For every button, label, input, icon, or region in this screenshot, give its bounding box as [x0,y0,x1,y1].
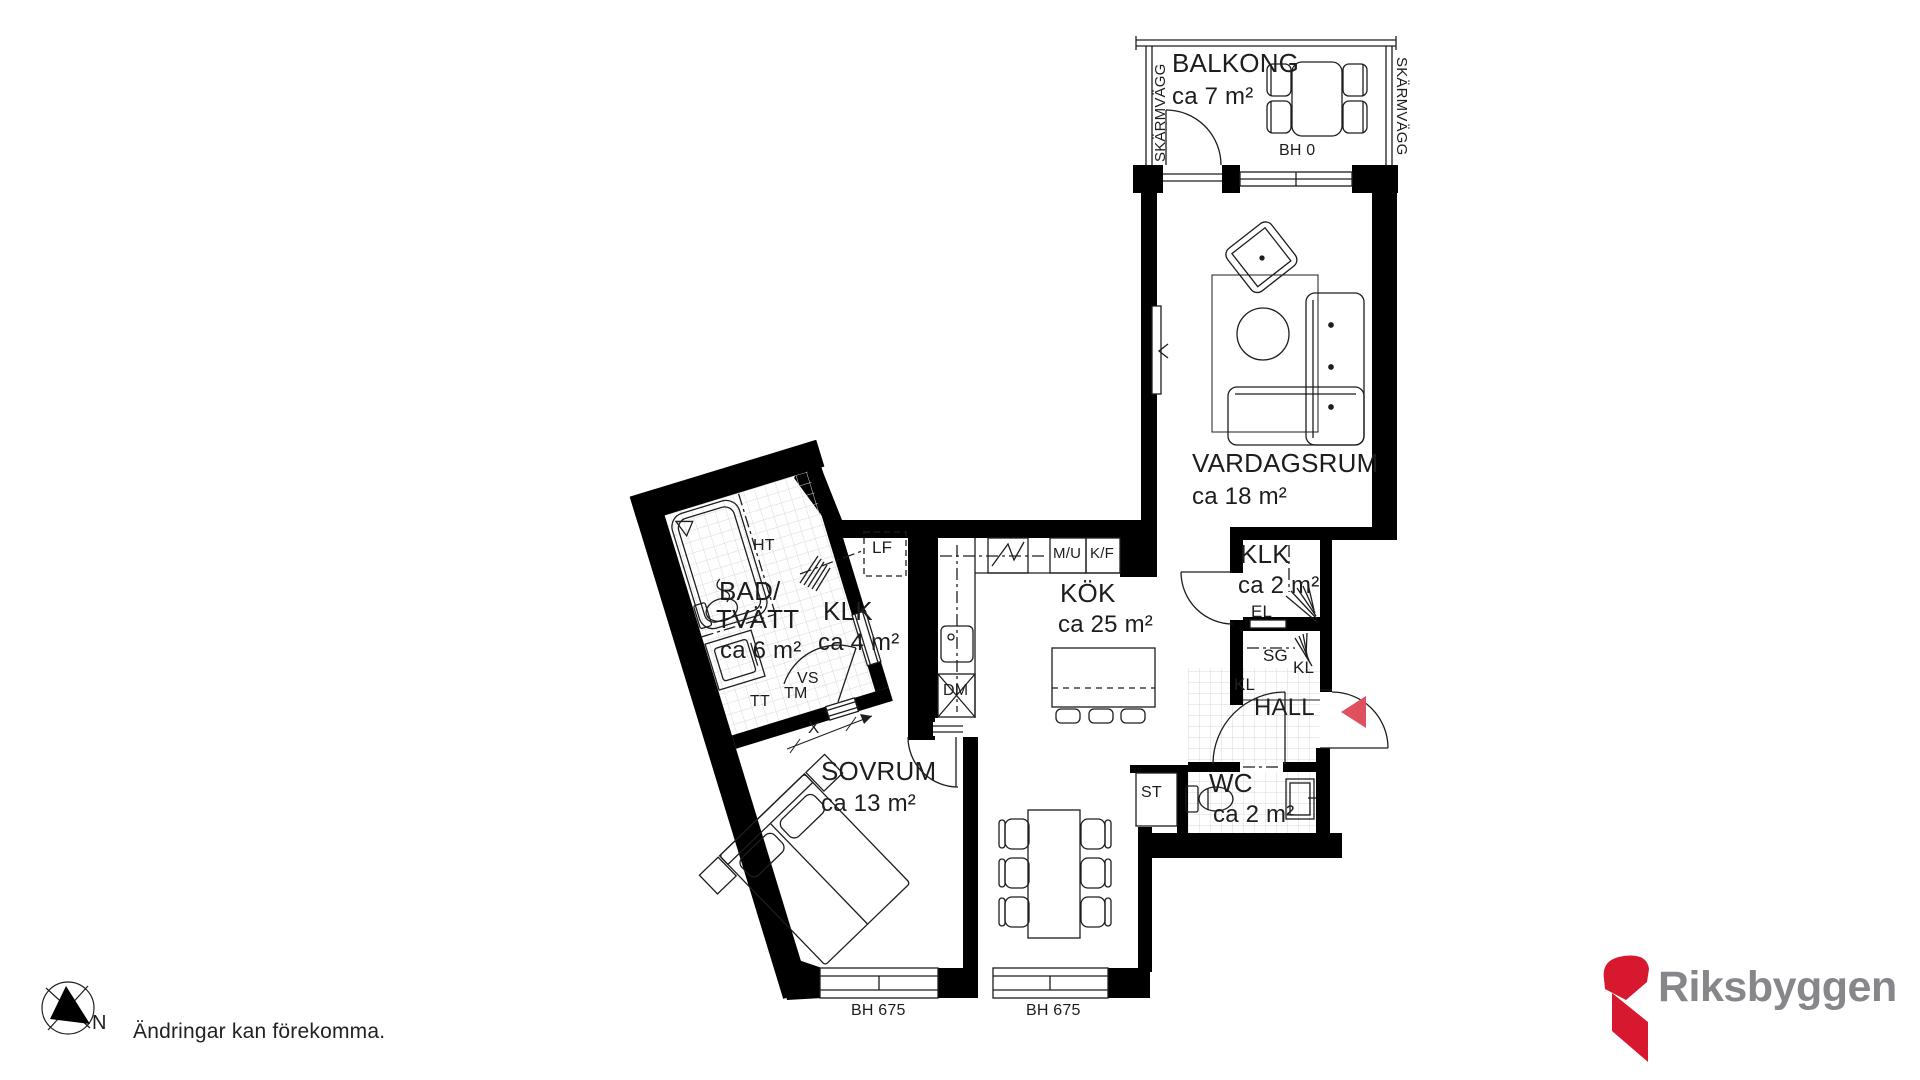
closet-small-name: KLK [1240,541,1290,567]
coffee-table-icon [1237,308,1289,360]
tm-label: TM [784,686,808,702]
micro-oven-label: M/U [1053,546,1081,561]
kitchen-window [993,968,1108,998]
screen-wall-label-right: SKÄRMVÄGG [1394,57,1409,156]
el-label: EL [1251,603,1272,620]
riksbyggen-logo-icon [1604,956,1649,1062]
dishwasher-label: DM [943,683,968,699]
closet-walkin-name: KLK [823,598,873,624]
wc-area: ca 2 m² [1213,803,1294,827]
bath-name-1: BAD/ [719,578,780,604]
living-room-window-west [1152,306,1168,394]
brand-name: Riksbyggen [1658,963,1897,1012]
bedroom-name: SOVRUM [821,758,936,784]
balcony-door [1166,110,1221,165]
north-label: N [92,1013,107,1033]
kitchen [794,442,1157,998]
floorplan-page: BALKONG ca 7 m² BH 0 SKÄRMVÄGG SKÄRMVÄGG… [0,0,1920,1080]
tt-label: TT [750,694,770,710]
kitchen-island-icon [1052,648,1155,723]
electric-cabinet [1250,620,1286,628]
hall-name: HALL [1254,696,1315,720]
entrance-door [1320,690,1388,748]
closet-walkin-area: ca 4 m² [818,631,899,655]
lf-label: LF [872,539,892,556]
bath-area: ca 6 m² [720,639,801,663]
sg-label: SG [1263,647,1288,664]
closet-small-area: ca 2 m² [1238,574,1319,598]
disclaimer-text: Ändringar kan förekomma. [133,1021,385,1042]
bedroom-window [820,968,938,998]
bath-name-2: TVÄTT [716,606,799,632]
armchair-icon [1223,219,1300,296]
balcony-area: ca 7 m² [1172,85,1253,109]
living-name: VARDAGSRUM [1192,450,1378,476]
kl-label-1: KL [1293,659,1314,676]
wc-name: WC [1209,770,1253,796]
window-sill-label-1: BH 675 [851,1003,906,1019]
dimension-x-label: X [808,719,820,736]
compass-icon [42,982,94,1034]
living-area: ca 18 m² [1192,485,1287,509]
st-label: ST [1141,785,1162,801]
vs-label: VS [797,671,819,687]
sofa-icon [1228,293,1364,445]
balcony-name: BALKONG [1172,50,1299,76]
balcony-sill-label: BH 0 [1279,143,1315,159]
screen-wall-label-left: SKÄRMVÄGG [1153,64,1168,163]
entry-arrow-icon [1341,696,1366,728]
kitchen-name: KÖK [1060,580,1116,606]
ht-label: HT [753,538,775,554]
dining-table-icon [999,810,1111,938]
window-sill-label-2: BH 675 [1026,1003,1081,1019]
kitchen-area: ca 25 m² [1058,613,1153,637]
floorplan-drawing [0,0,1920,1080]
living-room-window-north [1240,172,1352,186]
kl-label-2: KL [1234,676,1255,693]
fridge-freezer-label: K/F [1090,546,1114,561]
bedroom-area: ca 13 m² [821,792,916,816]
